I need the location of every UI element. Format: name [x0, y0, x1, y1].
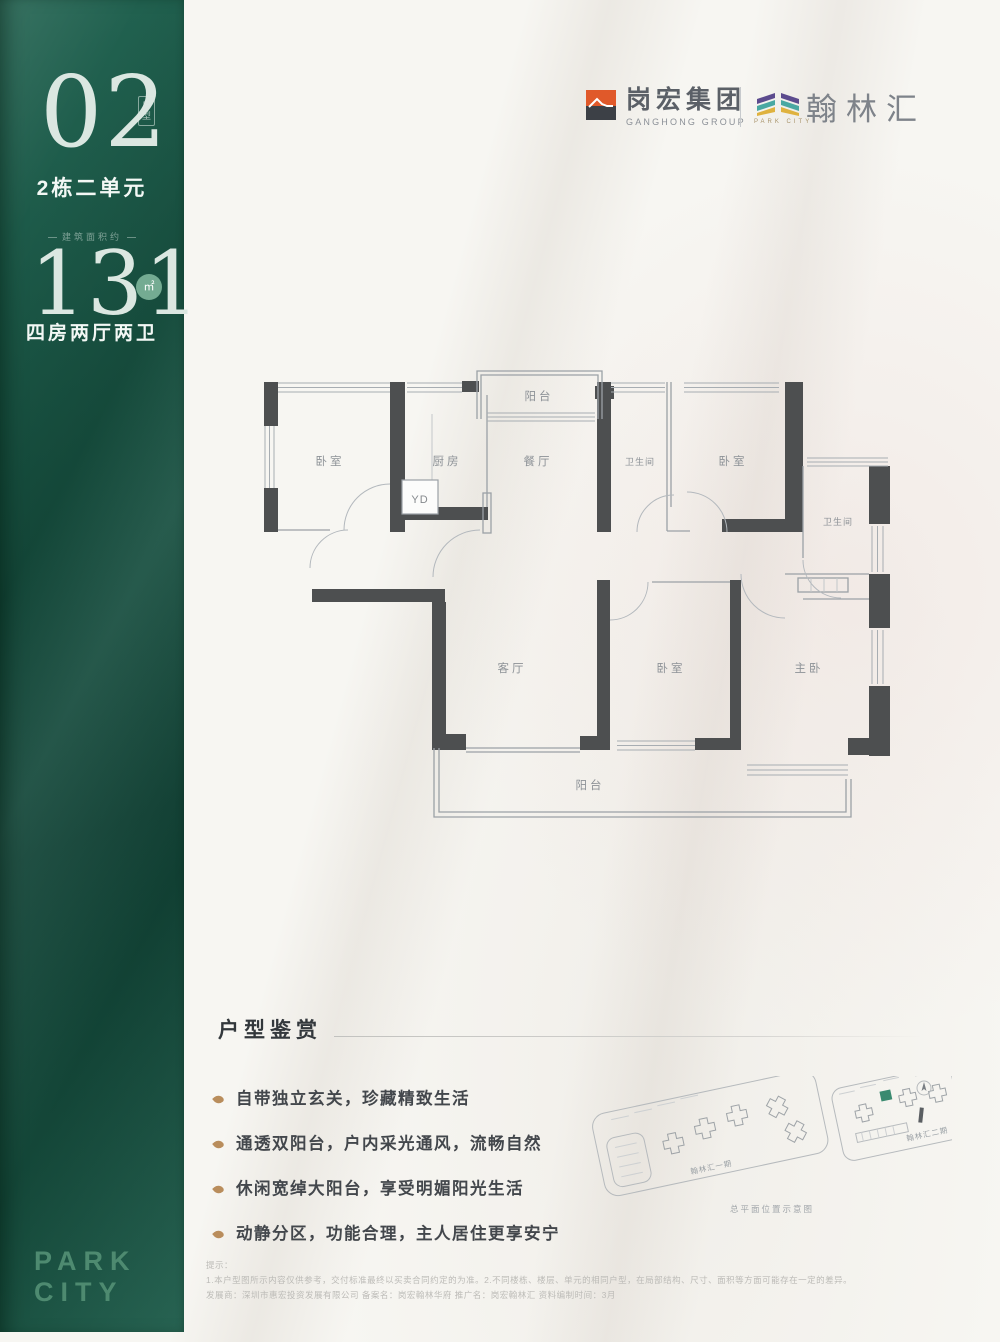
developer-logo-subtitle: GANGHONG GROUP — [626, 117, 746, 127]
bathroom-1-label: 卫生间 — [625, 456, 655, 467]
site-plan-phase1: 翰林汇一期 — [590, 1076, 830, 1198]
project-logo-subtitle: PARK CITY — [754, 119, 812, 125]
feature-text: 通透双阳台，户内采光通风，流畅自然 — [236, 1135, 542, 1153]
kitchen-label: 厨房 — [433, 455, 462, 468]
site-plan: 翰林汇一期 翰林汇二期 总平面位置示意图 — [572, 1076, 952, 1224]
living-label: 客厅 — [498, 661, 527, 675]
bathroom-2-label: 卫生间 — [823, 516, 853, 527]
dining-label: 餐厅 — [524, 454, 553, 468]
leaf-bullet-icon — [212, 1183, 225, 1196]
site-plan-phase2: 翰林汇二期 — [830, 1076, 952, 1162]
feature-item: 通透双阳台，户内采光通风，流畅自然 — [214, 1135, 560, 1154]
balcony-top-label: 阳台 — [525, 389, 554, 403]
area-unit-badge: ㎡ — [136, 274, 162, 300]
highlighted-building — [879, 1089, 892, 1101]
developer-logo-icon — [586, 90, 616, 125]
master-bedroom-label: 主卧 — [795, 662, 824, 675]
unit-type-badge: 户型 — [138, 96, 155, 126]
sidebar: 02 户型 2栋二单元 建筑面积约 131 ㎡ 四房两厅两卫 PARK CITY — [0, 0, 184, 1332]
feature-item: 休闲宽绰大阳台，享受明媚阳光生活 — [214, 1180, 560, 1199]
feature-item: 自带独立玄关，珍藏精致生活 — [214, 1090, 560, 1109]
disclaimer-line-2: 发展商：深圳市惠宏投资发展有限公司 备案名：岗宏翰林华府 推广名：岗宏翰林汇 资… — [206, 1288, 966, 1303]
project-logo-icon — [756, 90, 800, 121]
bedroom-bottom-label: 卧室 — [657, 661, 686, 675]
north-arrow-icon — [917, 1081, 931, 1095]
wordmark-line2: CITY — [34, 1277, 137, 1308]
project-logo-name: 翰林汇 — [806, 84, 926, 129]
laundry-label: YD — [411, 494, 428, 506]
layout-summary: 四房两厅两卫 — [0, 318, 184, 345]
disclaimer-heading: 提示： — [206, 1258, 966, 1273]
bedroom-top-right-label: 卧室 — [719, 454, 748, 468]
features-list: 自带独立玄关，珍藏精致生活 通透双阳台，户内采光通风，流畅自然 休闲宽绰大阳台，… — [214, 1090, 560, 1270]
feature-text: 休闲宽绰大阳台，享受明媚阳光生活 — [236, 1180, 524, 1198]
leaf-bullet-icon — [212, 1228, 225, 1241]
leaf-bullet-icon — [212, 1093, 225, 1106]
balcony-bottom-label: 阳台 — [576, 778, 605, 792]
leaf-bullet-icon — [212, 1138, 225, 1151]
site-plan-caption: 总平面位置示意图 — [730, 1204, 814, 1214]
floor-plan: 阳台 卧室 厨房 YD 餐厅 卫生间 卧室 卫生间 客厅 卧室 主卧 阳台 — [250, 362, 905, 840]
feature-item: 动静分区，功能合理，主人居住更享安宁 — [214, 1225, 560, 1244]
park-city-wordmark: PARK CITY — [34, 1246, 137, 1308]
building-unit-label: 2栋二单元 — [0, 172, 184, 202]
features-title: 户型鉴赏 — [218, 1014, 322, 1044]
disclaimer: 提示： 1.本户型图所示内容仅供参考，交付标准最终以买卖合同约定的为准。2.不同… — [206, 1258, 966, 1303]
developer-logo: 岗宏集团 GANGHONG GROUP — [626, 88, 746, 127]
feature-text: 自带独立玄关，珍藏精致生活 — [236, 1090, 470, 1108]
developer-logo-name: 岗宏集团 — [626, 88, 746, 113]
phase2-label: 翰林汇二期 — [905, 1124, 949, 1143]
area-value: 131 — [30, 240, 201, 328]
bedroom-top-left-label: 卧室 — [316, 454, 345, 468]
wordmark-line1: PARK — [34, 1246, 137, 1277]
disclaimer-line-1: 1.本户型图所示内容仅供参考，交付标准最终以买卖合同约定的为准。2.不同楼栋、楼… — [206, 1273, 966, 1288]
features-divider-line — [334, 1036, 922, 1037]
feature-text: 动静分区，功能合理，主人居住更享安宁 — [236, 1225, 560, 1243]
floor-plan-walls — [264, 381, 890, 756]
logo-divider — [740, 87, 741, 127]
poster-page: 02 户型 2栋二单元 建筑面积约 131 ㎡ 四房两厅两卫 PARK CITY… — [0, 0, 1000, 1342]
phase1-label: 翰林汇一期 — [689, 1158, 733, 1177]
